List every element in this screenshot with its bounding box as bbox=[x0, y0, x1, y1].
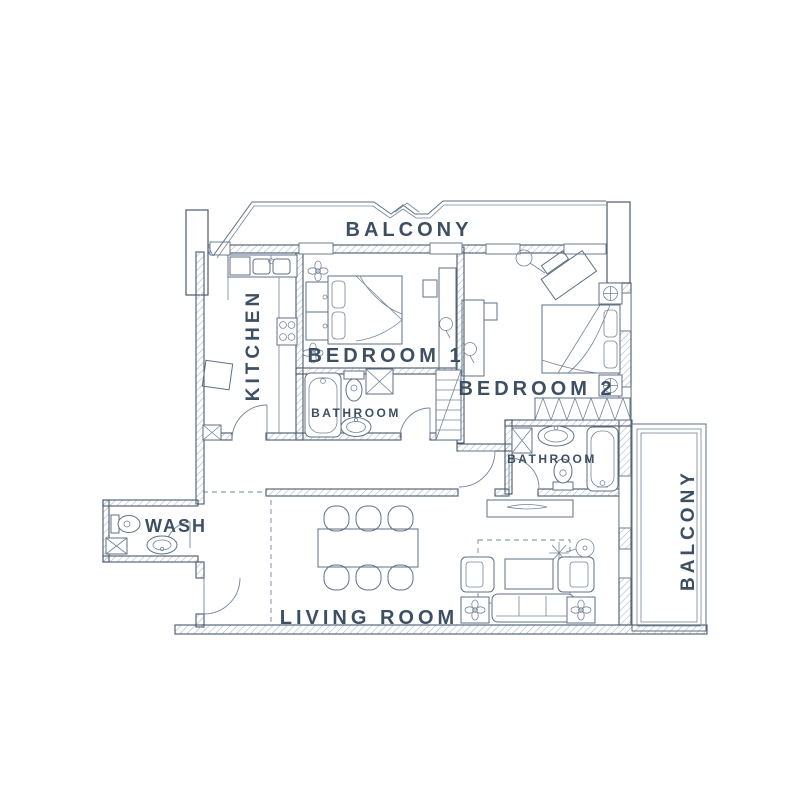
sink-icon bbox=[538, 426, 574, 446]
tv-console-icon bbox=[487, 500, 573, 517]
sofa-icon bbox=[492, 594, 574, 622]
living-room-furniture bbox=[318, 500, 595, 623]
toilet-icon bbox=[344, 371, 364, 401]
armchair-icon bbox=[558, 557, 594, 592]
window-icon bbox=[430, 243, 462, 254]
label-living-room: LIVING ROOM bbox=[280, 607, 458, 629]
door-entrance bbox=[204, 578, 240, 614]
stove-icon bbox=[277, 318, 297, 345]
sink-icon bbox=[147, 536, 177, 554]
label-bedroom2: BEDROOM 2 bbox=[458, 378, 615, 400]
chair-icon bbox=[440, 318, 453, 339]
closet-shelves-icon bbox=[436, 370, 461, 440]
label-bedroom1: BEDROOM 1 bbox=[307, 345, 464, 367]
bathroom1-fixtures bbox=[305, 369, 393, 437]
door-kitchen bbox=[232, 405, 267, 440]
wall-column-right bbox=[607, 202, 630, 283]
nightstand bbox=[306, 282, 328, 312]
chair-icon bbox=[464, 343, 477, 364]
window-icon bbox=[486, 244, 520, 254]
dining-table-icon bbox=[318, 506, 418, 590]
coffee-table bbox=[505, 559, 553, 589]
door-bedroom2 bbox=[459, 451, 495, 487]
wardrobe-icon bbox=[535, 398, 630, 420]
window-icon bbox=[619, 549, 631, 578]
washer-icon bbox=[366, 369, 393, 394]
door-bathroom1 bbox=[400, 408, 430, 438]
floor-plan-drawing: BALCONY KITCHEN BEDROOM 1 BATHROOM BEDRO… bbox=[0, 0, 800, 800]
label-bathroom2: BATHROOM bbox=[507, 452, 597, 466]
bed-icon bbox=[542, 305, 620, 373]
floor-boundaries bbox=[203, 492, 271, 623]
nightstand bbox=[599, 283, 622, 304]
bathtub-icon bbox=[305, 373, 341, 437]
kitchen-table bbox=[202, 360, 232, 390]
window-icon bbox=[619, 476, 631, 528]
label-balcony-right: BALCONY bbox=[678, 469, 699, 591]
shaft-icon bbox=[203, 425, 221, 440]
desk bbox=[462, 300, 484, 376]
toilet-icon bbox=[111, 515, 140, 533]
shaft-icon bbox=[106, 538, 127, 554]
bed-icon bbox=[328, 276, 402, 344]
side-table bbox=[461, 597, 489, 623]
label-kitchen: KITCHEN bbox=[243, 289, 264, 401]
label-balcony-top: BALCONY bbox=[346, 219, 473, 241]
floor-plan: BALCONY KITCHEN BEDROOM 1 BATHROOM BEDRO… bbox=[0, 0, 800, 800]
label-bathroom1: BATHROOM bbox=[311, 406, 401, 420]
shaft-icon bbox=[512, 428, 532, 453]
sink-icon bbox=[341, 418, 371, 437]
window-icon bbox=[564, 244, 606, 254]
shelf-icon bbox=[423, 280, 437, 297]
label-wash: WASH bbox=[145, 516, 207, 536]
nightstand bbox=[306, 312, 328, 340]
plant-icon bbox=[308, 261, 328, 281]
shelf-icon bbox=[484, 303, 497, 320]
armchair-icon bbox=[461, 557, 494, 592]
side-table bbox=[567, 597, 595, 623]
window-icon bbox=[299, 243, 333, 254]
